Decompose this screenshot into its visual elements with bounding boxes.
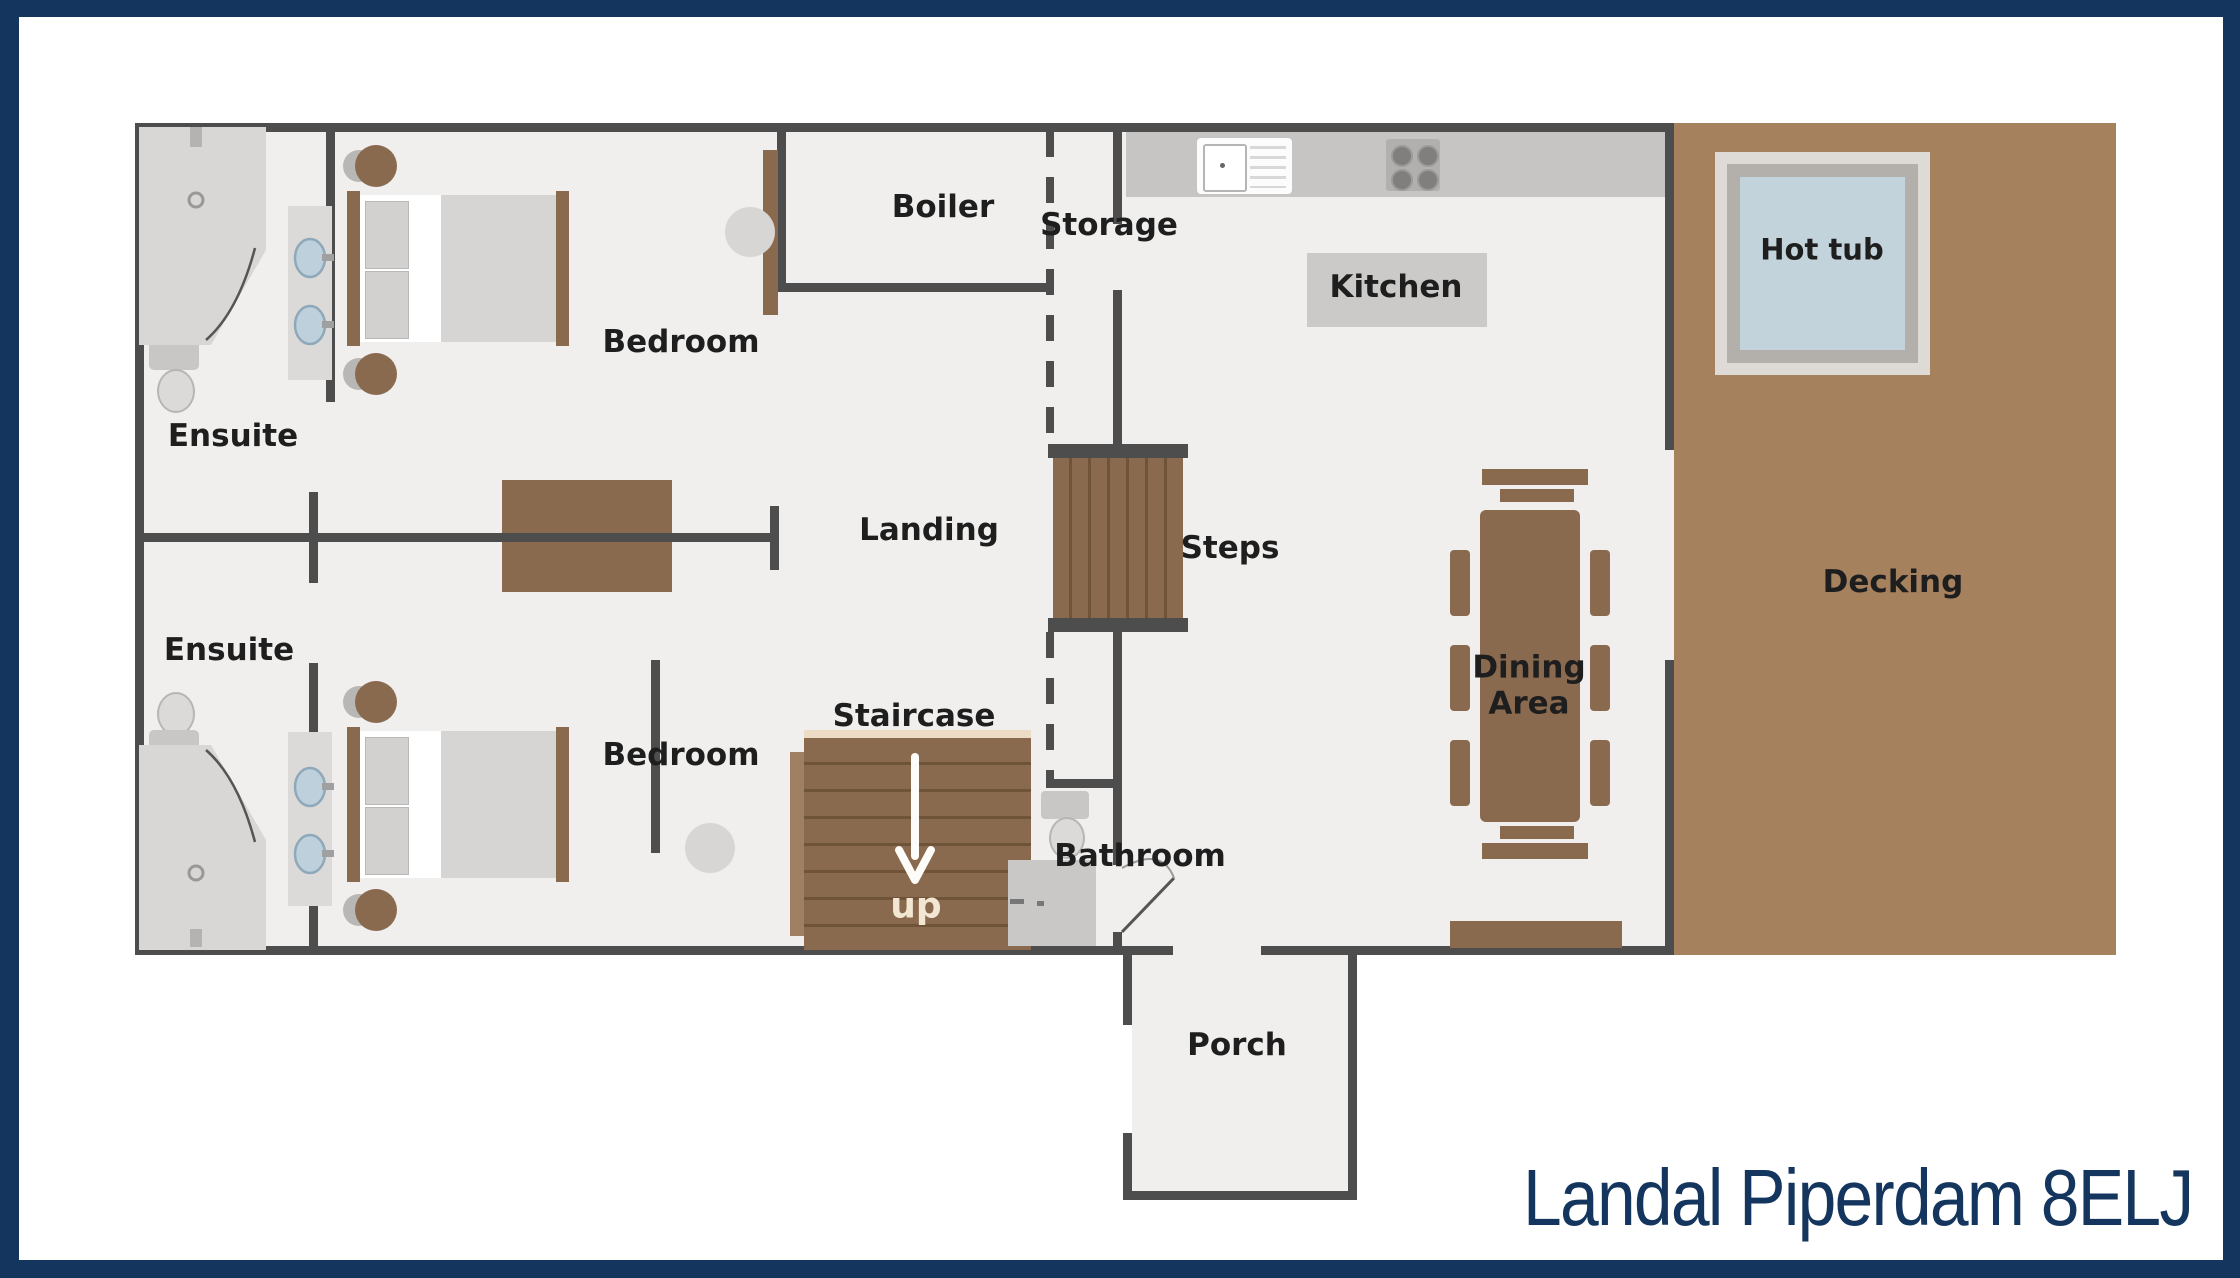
bedside-table-icon	[355, 889, 397, 931]
label-bedroom-top: Bedroom	[602, 325, 759, 361]
oven-door-icon	[1203, 144, 1247, 192]
oven-vent-icon	[1250, 146, 1286, 188]
label-landing: Landing	[859, 513, 999, 549]
wall-below-steps	[1113, 632, 1122, 783]
label-ensuite-top: Ensuite	[168, 419, 298, 455]
steps-icon	[1053, 458, 1183, 618]
dining-chair	[1482, 469, 1588, 485]
hob-burner-icon	[1391, 145, 1413, 167]
wall-storage-right-lower	[1113, 290, 1122, 448]
dashed-floor-split	[1046, 131, 1054, 444]
label-boiler: Boiler	[892, 190, 995, 226]
wall-porch-left	[1123, 955, 1132, 1025]
wall-boiler-bottom	[777, 283, 1050, 292]
rug-icon	[725, 207, 775, 257]
wall-outer-top	[135, 123, 1674, 132]
floorplan-page: Boiler Storage Bedroom Ensuite Landing S…	[0, 0, 2240, 1278]
blanket-icon	[441, 731, 557, 878]
label-dining-area: Dining Area	[1459, 650, 1599, 721]
wall-bathroom-top	[1046, 779, 1122, 788]
toilet-bowl-icon	[157, 369, 195, 413]
label-staircase: Staircase	[833, 699, 996, 735]
porch-floor	[1132, 955, 1348, 1195]
dining-chair	[1500, 826, 1574, 839]
bedside-table-icon	[355, 145, 397, 187]
wall-cross-stub	[309, 492, 318, 583]
dashed-floor-split	[1046, 632, 1054, 779]
label-decking: Decking	[1823, 565, 1964, 601]
footboard-icon	[556, 191, 569, 346]
wall-living-decking-upper	[1665, 123, 1674, 450]
faucet-icon	[1037, 901, 1044, 906]
wall-porch-bottom	[1123, 1191, 1357, 1200]
wall-porch-left	[1123, 1133, 1132, 1200]
hob-burner-icon	[1391, 169, 1413, 191]
blanket-icon	[441, 195, 557, 342]
steps-cap-top	[1048, 444, 1188, 458]
steps-cap-bottom	[1048, 618, 1188, 632]
pillow-icon	[365, 271, 409, 339]
pillow-icon	[365, 201, 409, 269]
label-storage: Storage	[1040, 208, 1178, 244]
hob-burner-icon	[1417, 169, 1439, 191]
faucet-icon	[1010, 899, 1024, 904]
headboard-icon	[347, 727, 360, 882]
wall-bathroom-right	[1113, 932, 1122, 955]
wall-suite-divider	[135, 533, 777, 542]
pillow-icon	[365, 807, 409, 875]
dining-chair	[1450, 550, 1470, 616]
dining-chair	[1482, 843, 1588, 859]
hob-burner-icon	[1417, 145, 1439, 167]
toilet-cistern-icon	[1041, 791, 1089, 819]
bedside-table-icon	[355, 353, 397, 395]
label-kitchen: Kitchen	[1329, 270, 1462, 306]
label-hot-tub: Hot tub	[1760, 233, 1883, 266]
oven-dot-icon	[1220, 163, 1225, 168]
label-bathroom: Bathroom	[1054, 839, 1226, 875]
wall-suite-divider-cap	[770, 506, 779, 570]
headboard-icon	[347, 191, 360, 346]
rug-icon	[685, 823, 735, 873]
sideboard-icon	[1450, 921, 1622, 948]
dining-chair	[1500, 489, 1574, 502]
toilet-cistern-icon	[149, 730, 199, 760]
staircase-side-strip	[790, 752, 804, 936]
page-title: Landal Piperdam 8ELJ	[1523, 1152, 2192, 1244]
label-up: up	[890, 885, 941, 926]
bedside-table-icon	[355, 681, 397, 723]
vanity-icon	[288, 732, 332, 906]
label-ensuite-bottom: Ensuite	[164, 633, 294, 669]
footboard-icon	[556, 727, 569, 882]
wall-boiler-left	[777, 123, 786, 290]
dining-chair	[1590, 740, 1610, 806]
toilet-cistern-icon	[149, 340, 199, 370]
vanity-icon	[288, 206, 332, 380]
label-steps: Steps	[1181, 531, 1280, 567]
dining-chair	[1590, 550, 1610, 616]
dining-chair	[1450, 740, 1470, 806]
wall-porch-right	[1348, 955, 1357, 1200]
label-porch: Porch	[1187, 1028, 1287, 1064]
pillow-icon	[365, 737, 409, 805]
wall-living-decking-lower	[1665, 660, 1674, 955]
label-bedroom-bottom: Bedroom	[602, 738, 759, 774]
